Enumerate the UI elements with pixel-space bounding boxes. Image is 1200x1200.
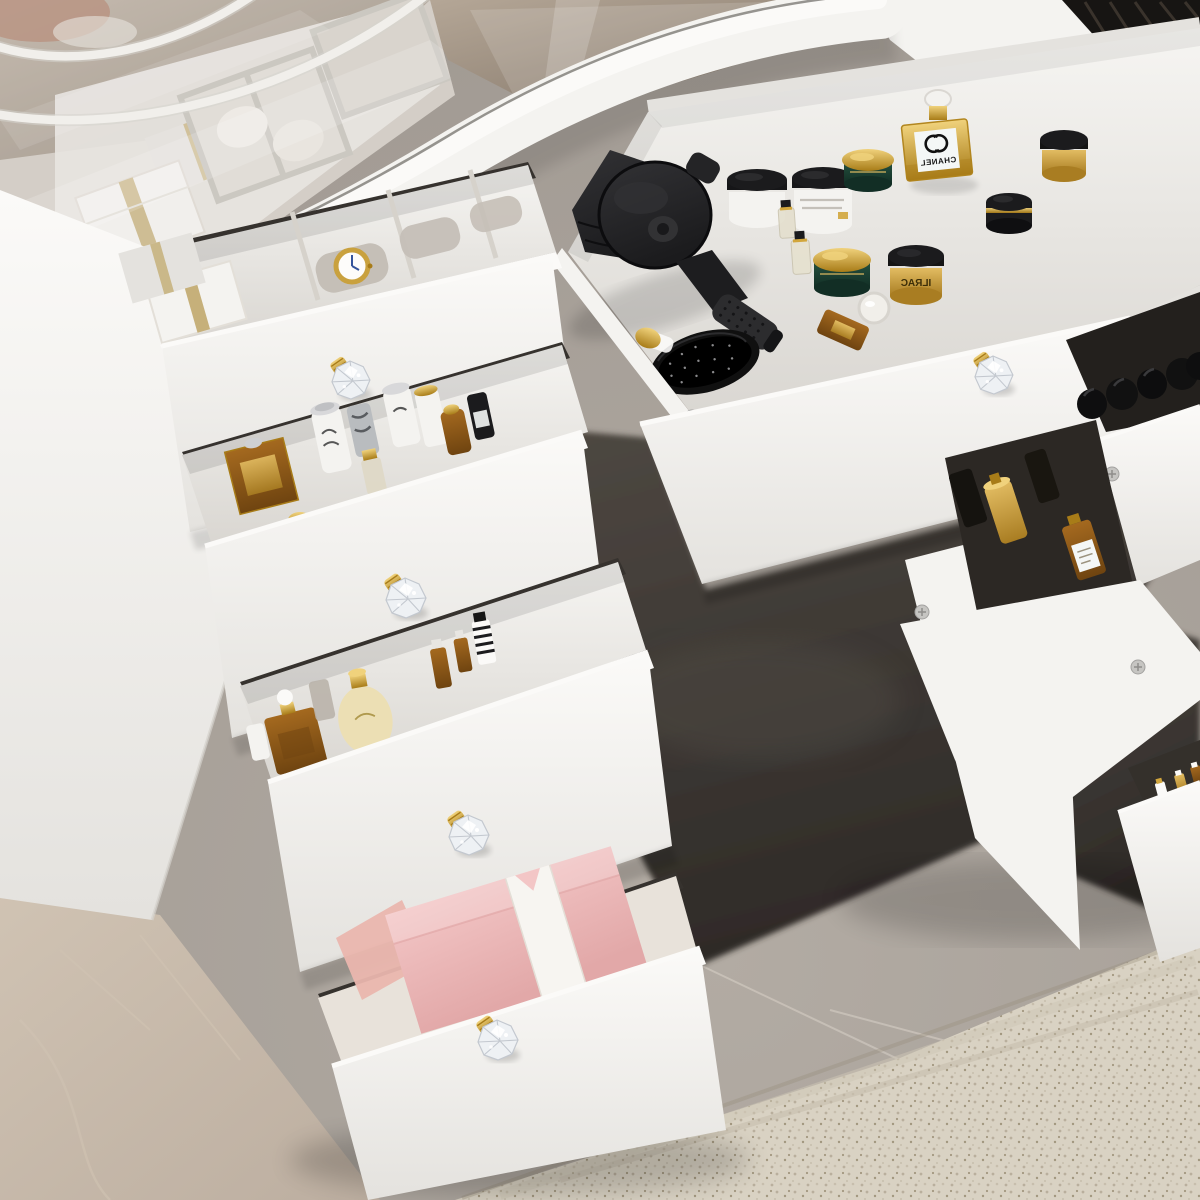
glass-stopper [925, 90, 951, 108]
gold-jar-ilrac: ILRAC [888, 245, 944, 305]
white-jar-1 [727, 169, 787, 228]
green-jar-1 [842, 149, 894, 192]
floor-mottle [620, 640, 900, 760]
vanity-product-photo: ILRAC CHANEL [0, 0, 1200, 1200]
green-jar-2 [813, 248, 871, 297]
bottle-neck [929, 106, 947, 120]
gold-jar-label: ILRAC [901, 278, 932, 289]
gold-jar-2 [1040, 130, 1088, 182]
dryer-housing [599, 162, 711, 268]
scene-canvas: ILRAC CHANEL [0, 0, 1200, 1200]
glass-ball-stopper [859, 293, 889, 323]
black-jar-gold-band [986, 193, 1032, 234]
